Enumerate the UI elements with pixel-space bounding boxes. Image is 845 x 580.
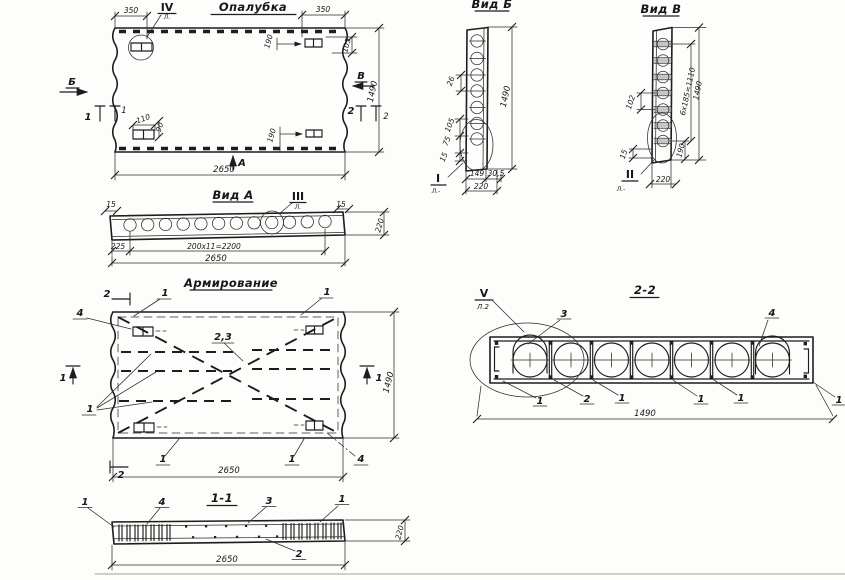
detail-mark-i: I — [436, 172, 440, 185]
dim-105-right: 105 — [340, 37, 352, 53]
reinforcement-view: Армирование 2 1 1 4 2,3 1 1 1 1 1 4 2 14… — [60, 276, 399, 482]
detail-mark-iii: III — [292, 190, 304, 203]
view-v-title: Вид В — [641, 2, 682, 16]
view-b-outline — [466, 28, 488, 172]
s22-callout-4: 4 — [768, 308, 776, 319]
reinf-callout-4-dashdot-leader — [326, 432, 355, 456]
s11-dim-2650: 2650 — [216, 555, 238, 565]
reinf-right-edge — [341, 312, 346, 438]
detail-sheet-iii: Л. — [294, 204, 302, 211]
dim-height-1490: 1490 — [366, 80, 380, 103]
cut-right-1: 1 — [376, 373, 383, 384]
cut-left-1: 1 — [60, 373, 67, 384]
callout-1-bottom-right: 1 — [289, 454, 296, 465]
reinf-callout-leaders — [87, 298, 322, 456]
detail-sheet-ii: Л.- — [616, 186, 626, 193]
view-letter-b: Б — [68, 77, 76, 88]
detail-sheet-i: Л.- — [431, 188, 441, 195]
cut-label-2b: 2 — [383, 112, 388, 122]
detail-mark-iv: IV — [161, 1, 174, 14]
s22-callout-1d: 1 — [738, 393, 745, 404]
callout-1-top-right: 1 — [324, 287, 331, 298]
reinforcement-title: Армирование — [183, 276, 278, 290]
s11-callout-2: 2 — [296, 549, 303, 560]
view-b: Вид Б 26 1490 105 75 15 I Л.- 149 30,5 2… — [431, 0, 517, 195]
cut-label-2: 2 — [348, 106, 355, 117]
detail-iv-leader — [147, 15, 161, 37]
view-b-title: Вид Б — [472, 0, 513, 11]
dim-220-v: 220 — [656, 175, 671, 184]
s11-ext-dims — [112, 520, 410, 570]
dim-350-right: 350 — [316, 5, 331, 14]
dim-75-b: 75 — [441, 135, 453, 147]
section-2-2: V Л.2 2-2 3 4 1 2 1 1 1 1 1490 — [470, 283, 845, 423]
reinf-callout-shelves — [73, 298, 368, 465]
dim-110: 110 — [135, 112, 152, 125]
formwork-title: Опалубка — [219, 0, 287, 14]
dim-2650: 2650 — [205, 254, 227, 264]
reinf-cut-marks — [66, 293, 374, 473]
reinf-dim-2650: 2650 — [218, 466, 240, 476]
callout-1-top-left: 1 — [162, 288, 169, 299]
dim-hole-spacing: 200х11=2200 — [187, 242, 241, 251]
dim-149: 149 — [470, 169, 485, 178]
formwork-ext-dims — [115, 11, 384, 180]
dim-350-left: 350 — [124, 6, 139, 15]
dim-30-5: 30,5 — [488, 169, 505, 178]
s22-callout-1b: 1 — [619, 393, 626, 404]
dim-15-v: 15 — [618, 148, 630, 160]
s22-callout-1a: 1 — [537, 396, 544, 407]
s22-title: 2-2 — [634, 283, 656, 297]
reinf-outline — [113, 312, 343, 438]
formwork-left-edge — [113, 28, 118, 152]
s11-callout-4: 4 — [158, 497, 166, 508]
dim-1490-b: 1490 — [499, 85, 513, 108]
view-letter-a: А — [237, 158, 246, 169]
formwork-dim-ticks — [111, 11, 383, 179]
dim-width-2650: 2650 — [213, 165, 235, 175]
view-a-title: Вид А — [212, 188, 253, 202]
view-a: Вид А III Л. 15 15 220 225 200х11=2200 2… — [101, 188, 389, 267]
s22-callout-1e: 1 — [836, 395, 843, 406]
s11-title: 1-1 — [211, 491, 233, 505]
s22-callout-shelves — [533, 318, 845, 406]
letter-underlines — [66, 14, 367, 89]
s22-callout-3: 3 — [561, 309, 568, 320]
s11-callout-1-left: 1 — [82, 497, 89, 508]
engineering-drawing: Опалубка IV Л. 350 350 190 105 В 1490 Б … — [0, 0, 845, 580]
detail-mark-ii: II — [626, 168, 634, 181]
cut-top-2: 2 — [104, 289, 111, 300]
dim-26: 26 — [445, 75, 457, 87]
callout-1-bottom-left: 1 — [160, 454, 167, 465]
dim-105-b: 105 — [443, 117, 457, 134]
dim-220-b: 220 — [474, 182, 489, 191]
dim-15-right: 15 — [336, 200, 346, 209]
view-v-dim-ticks — [629, 24, 703, 189]
cut-bottom-2: 2 — [118, 470, 125, 481]
view-b-inner-line — [483, 28, 484, 170]
callout-4-left: 4 — [76, 308, 84, 319]
detail-mark-v: V — [480, 287, 489, 300]
dim-225: 225 — [111, 242, 126, 251]
dim-15-b: 15 — [438, 151, 450, 163]
reinf-dim-ticks — [109, 308, 398, 481]
callout-1-mid-left: 1 — [87, 404, 94, 415]
dim-90: 90 — [154, 121, 166, 133]
reinf-left-edge — [111, 312, 116, 438]
callout-4-bottom: 4 — [357, 454, 365, 465]
view-letter-v: В — [357, 71, 365, 82]
section-1-1: 1 4 1-1 3 1 2 2650 220 — [78, 491, 410, 570]
formwork-view: Опалубка IV Л. 350 350 190 105 В 1490 Б … — [60, 0, 389, 180]
s22-callout-1c: 1 — [698, 394, 705, 405]
view-v: Вид В 102 15 190 6х185=1110 1490 II Л.- … — [616, 2, 706, 193]
cut-label-1: 1 — [85, 112, 92, 123]
reinf-plate-dashes — [156, 330, 304, 427]
dim-190-top: 190 — [262, 33, 274, 49]
detail-sheet-iv: Л. — [163, 14, 171, 21]
cut-label-1b: 1 — [121, 106, 126, 116]
s22-callout-2: 2 — [584, 394, 591, 405]
s11-dim-220: 220 — [393, 524, 405, 540]
s22-dim-1490: 1490 — [634, 409, 656, 419]
s11-callout-3: 3 — [266, 496, 273, 507]
detail-i-leader — [448, 163, 463, 177]
s22-cores — [511, 343, 792, 377]
dim-15-left: 15 — [106, 200, 116, 209]
detail-circle-iii — [261, 211, 284, 234]
s11-inner-lines — [113, 524, 344, 539]
drawing-sheet: Опалубка IV Л. 350 350 190 105 В 1490 Б … — [0, 0, 845, 580]
s11-bar-dots — [185, 525, 278, 539]
callout-2-3: 2,3 — [214, 332, 232, 343]
dim-190-bottom: 190 — [265, 127, 277, 143]
reinf-horizontal-bars — [119, 350, 337, 401]
s11-callout-1-right: 1 — [339, 494, 346, 505]
detail-sheet-v: Л.2 — [476, 303, 489, 311]
dim-102: 102 — [624, 94, 637, 111]
